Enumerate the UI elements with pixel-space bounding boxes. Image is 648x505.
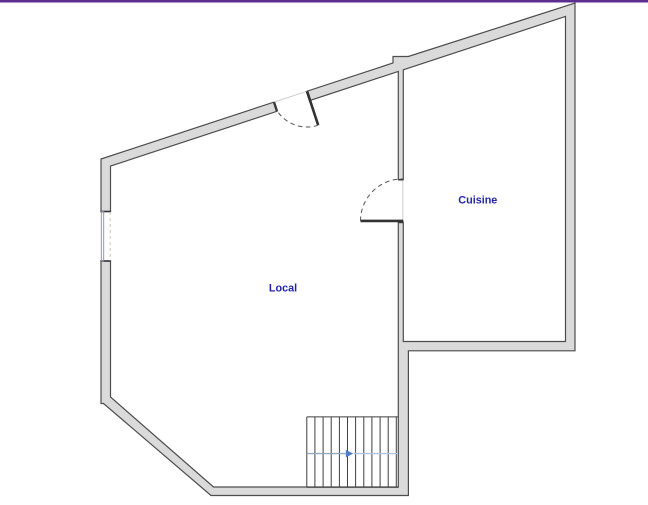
svg-text:Local: Local (269, 283, 297, 295)
svg-text:Cuisine: Cuisine (458, 195, 497, 207)
